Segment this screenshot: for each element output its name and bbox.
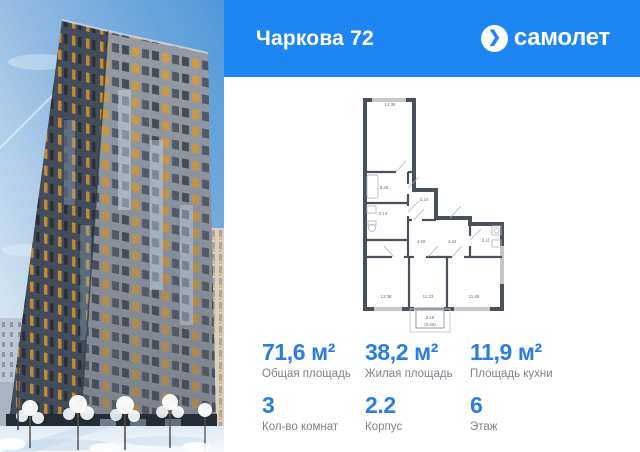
balcony-coefficient-label: (0.65) [424,322,436,327]
room-area-label: 12.38 [381,294,393,299]
stat-floor: 6 Этаж [470,393,590,433]
exterior-walls [365,100,502,309]
balcony-area-label: 2.18 [426,315,435,320]
room-area-label: 3.24 [420,197,429,202]
stat-label: Площадь кухни [470,368,590,380]
balcony [410,309,450,332]
stat-label: Этаж [470,421,590,433]
floor-plan: 14.36 3.25 3.14 3.24 4.99 4.44 2.11 12.3… [354,92,510,336]
stat-label: Кол-во комнат [262,421,365,433]
room-area-label: 11.88 [469,294,480,299]
stat-building: 2.2 Корпус [365,393,470,433]
samolet-wordmark: самолет [514,24,610,52]
room-area-label: 2.11 [482,238,491,243]
room-area-label: 14.36 [385,102,397,107]
building-photo [0,0,224,452]
stat-value: 2.2 [365,393,470,417]
stat-label: Корпус [365,421,470,433]
room-area-label: 11.23 [423,294,434,299]
room-area-label: 3.25 [380,185,389,190]
page-title: Чаркова 72 [256,27,374,51]
stat-value: 71,6 м² [262,340,365,364]
room-area-label: 3.14 [379,211,388,216]
apartment-stats: 71,6 м² Общая площадь 38,2 м² Жилая площ… [262,340,590,433]
stat-value: 11,9 м² [470,340,590,364]
room-area-label: 4.99 [417,239,426,244]
stat-rooms-count: 3 Кол-во комнат [262,393,365,433]
samolet-logo[interactable]: ❯ самолет [481,24,610,52]
stat-value: 3 [262,393,365,417]
room-area-label: 4.44 [448,239,457,244]
listing-card: Чаркова 72 ❯ самолет [0,0,640,452]
stat-living-area: 38,2 м² Жилая площадь [365,340,470,380]
header-bar: Чаркова 72 ❯ самолет [224,0,640,77]
stat-kitchen-area: 11,9 м² Площадь кухни [470,340,590,380]
samolet-logo-icon: ❯ [481,25,508,52]
stat-value: 6 [470,393,590,417]
stat-label: Общая площадь [262,368,365,380]
stat-label: Жилая площадь [365,368,470,380]
stat-value: 38,2 м² [365,340,470,364]
stat-total-area: 71,6 м² Общая площадь [262,340,365,380]
